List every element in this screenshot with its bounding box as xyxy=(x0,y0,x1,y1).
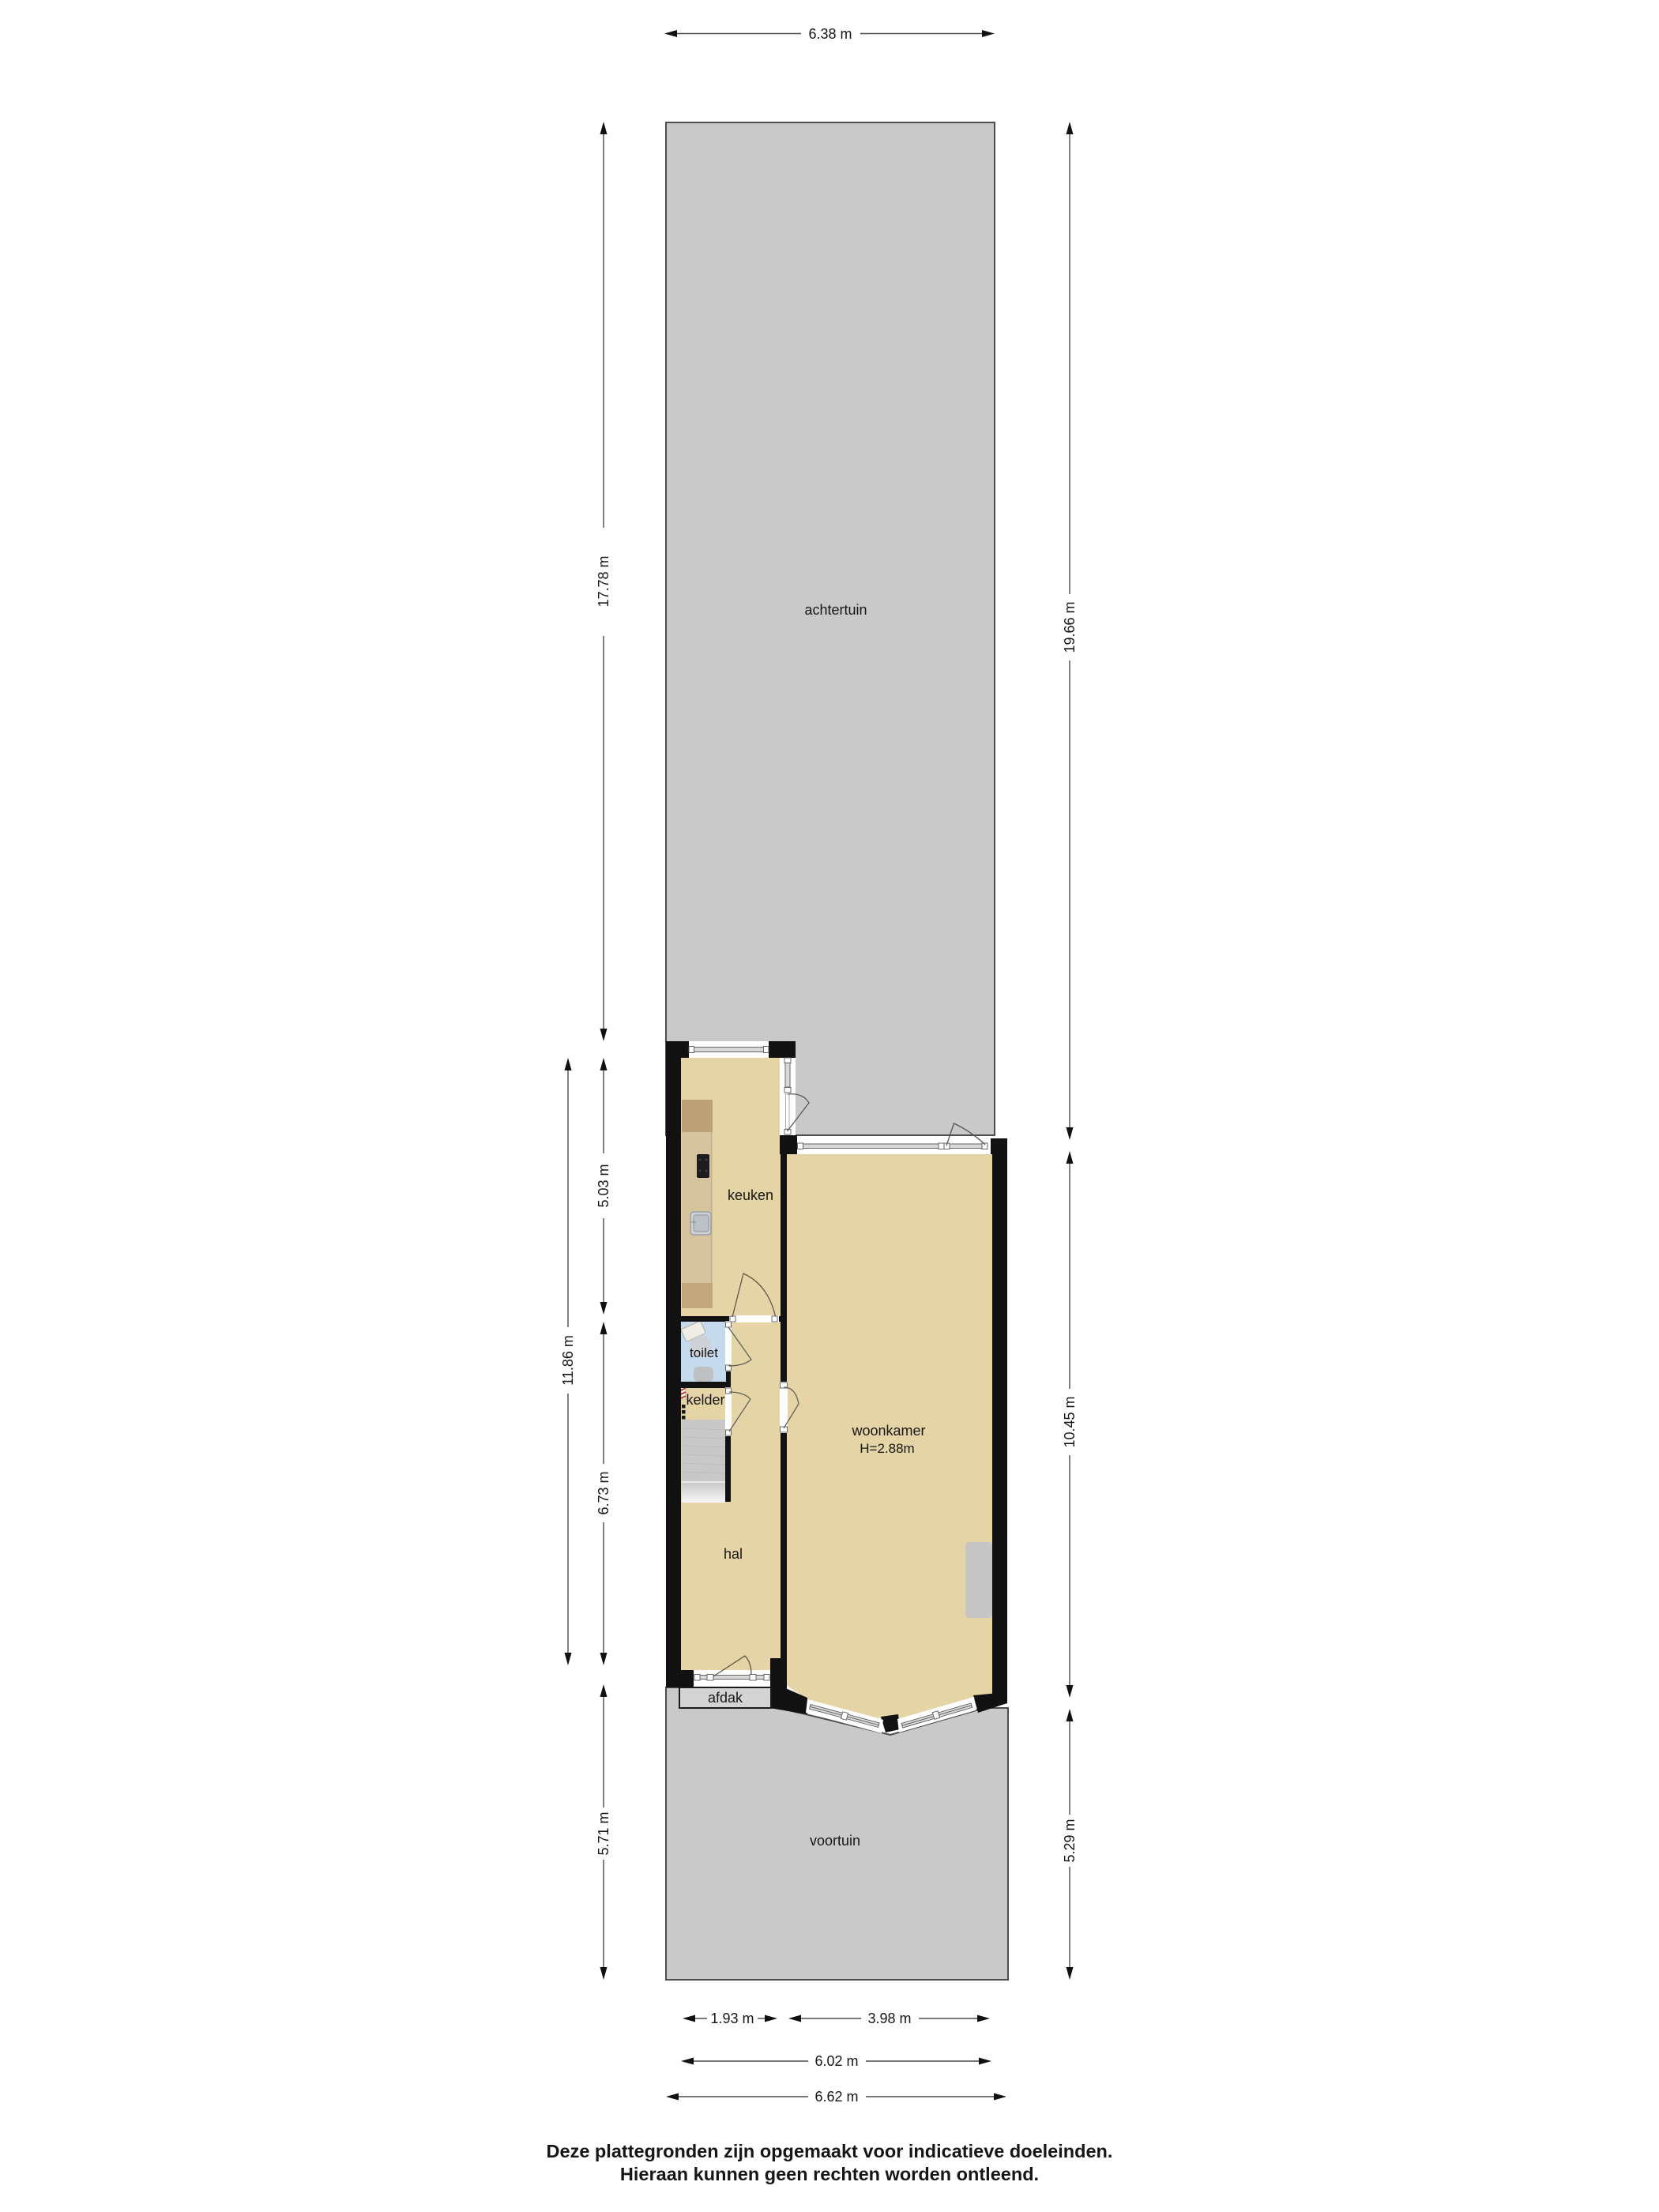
svg-text:11.86 m: 11.86 m xyxy=(560,1335,576,1386)
svg-text:5.03 m: 5.03 m xyxy=(596,1164,611,1207)
svg-text:woonkamer: woonkamer xyxy=(851,1423,925,1439)
svg-text:5.29 m: 5.29 m xyxy=(1062,1819,1078,1862)
svg-text:hal: hal xyxy=(724,1546,743,1562)
svg-text:6.38 m: 6.38 m xyxy=(808,26,852,42)
svg-text:10.45 m: 10.45 m xyxy=(1062,1396,1078,1447)
svg-text:toilet: toilet xyxy=(690,1345,718,1360)
svg-text:19.66 m: 19.66 m xyxy=(1062,601,1078,653)
svg-text:17.78 m: 17.78 m xyxy=(596,555,611,607)
svg-text:6.73 m: 6.73 m xyxy=(596,1471,611,1514)
svg-text:5.71 m: 5.71 m xyxy=(596,1811,611,1855)
svg-text:achtertuin: achtertuin xyxy=(804,602,867,618)
svg-text:6.02 m: 6.02 m xyxy=(814,2053,858,2069)
svg-text:H=2.88m: H=2.88m xyxy=(860,1441,914,1456)
svg-text:voortuin: voortuin xyxy=(810,1833,860,1849)
svg-text:Deze plattegronden zijn opgema: Deze plattegronden zijn opgemaakt voor i… xyxy=(547,2141,1113,2161)
svg-text:6.62 m: 6.62 m xyxy=(814,2089,858,2105)
svg-text:Hieraan kunnen geen rechten wo: Hieraan kunnen geen rechten worden ontle… xyxy=(620,2164,1039,2184)
svg-text:afdak: afdak xyxy=(708,1690,743,1706)
svg-text:keuken: keuken xyxy=(728,1187,773,1203)
svg-text:1.93 m: 1.93 m xyxy=(710,2011,754,2026)
svg-text:3.98 m: 3.98 m xyxy=(867,2011,911,2026)
svg-text:kelder: kelder xyxy=(686,1392,724,1408)
